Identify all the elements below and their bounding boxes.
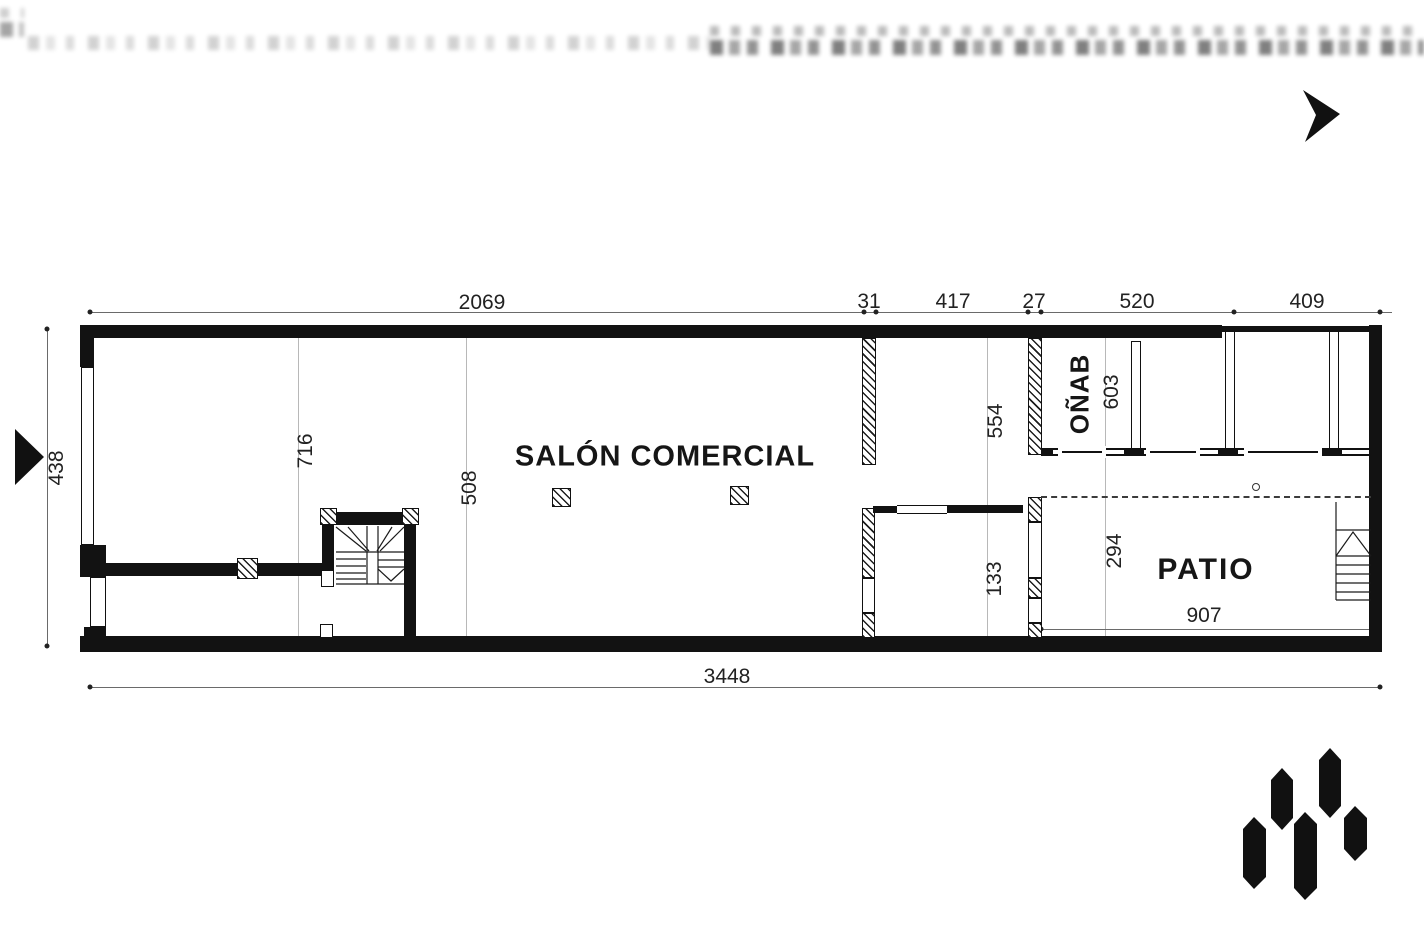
stalls-foot-0 — [1041, 448, 1053, 456]
stall-partition-3 — [1329, 331, 1339, 449]
vestibule-left-window — [862, 578, 875, 613]
window-left-lower — [90, 577, 106, 627]
patio-dashed-line — [1041, 496, 1371, 498]
dim-306: 603 — [1100, 374, 1124, 409]
wall-left-lower — [84, 627, 106, 641]
dim-617: 716 — [294, 433, 318, 468]
room-label-salon: SALÓN COMERCIAL — [515, 441, 815, 474]
patio-marker-circle — [1252, 483, 1260, 491]
dim-3448: 3448 — [704, 665, 751, 689]
vestibule-top-window — [897, 505, 947, 514]
dim-409: 409 — [1289, 290, 1324, 314]
dim-455: 554 — [984, 403, 1008, 438]
wall-hatch-27 — [1028, 338, 1042, 455]
stairwell-right-wall — [404, 524, 416, 638]
stairwell-corner-right — [402, 508, 419, 525]
dim-2069: 2069 — [459, 291, 506, 315]
dim-331: 133 — [983, 561, 1007, 596]
dim-520: 520 — [1119, 290, 1154, 314]
watermark-band-left — [28, 26, 710, 60]
wall-bottom — [80, 636, 1382, 652]
floor-plan-canvas: 2069 31 417 27 520 409 3448 907 438 716 … — [0, 0, 1424, 950]
stairwell-left-wall — [322, 524, 334, 570]
column-salon-a — [552, 488, 571, 507]
room-label-bano: OÑAB — [1065, 354, 1096, 435]
vestibule-top-a — [873, 506, 897, 513]
dim-line-left — [47, 329, 48, 646]
dim-834: 438 — [45, 450, 69, 485]
entry-arrow-icon — [15, 429, 44, 485]
stairwell-corner-left — [320, 508, 337, 525]
wall-top — [80, 325, 1222, 338]
stairwell-stub — [320, 624, 333, 638]
window-left-upper — [81, 367, 94, 545]
stall-partition-1 — [1131, 341, 1141, 449]
stalls-foot-2 — [1218, 448, 1238, 456]
dim-907: 907 — [1186, 604, 1221, 628]
dim-417: 417 — [935, 290, 970, 314]
stalls-foot-1 — [1124, 448, 1144, 456]
watermark-band-right — [710, 24, 1424, 62]
stairwell-door — [321, 570, 334, 587]
stalls-foot-3 — [1322, 448, 1342, 456]
wall-interior-low — [94, 563, 330, 576]
room-label-patio: PATIO — [1157, 553, 1254, 587]
dim-27: 27 — [1022, 290, 1045, 314]
wall-top-thin — [1222, 326, 1382, 332]
vestibule-right-a — [1028, 497, 1042, 522]
dim-31: 31 — [857, 290, 880, 314]
vestibule-top-b — [947, 505, 1023, 513]
vestibule-right-c — [1028, 623, 1042, 638]
brand-logo — [1243, 748, 1367, 900]
vestibule-right-b — [1028, 578, 1042, 598]
dim-492: 294 — [1103, 533, 1127, 568]
wall-hatch-31 — [862, 338, 876, 465]
column-low-wall — [237, 558, 258, 579]
stair-patio — [1336, 502, 1371, 600]
vestibule-right-window-a — [1028, 522, 1042, 578]
stair-left — [336, 526, 404, 584]
wall-right — [1369, 325, 1382, 652]
vestibule-right-window-b — [1028, 598, 1042, 623]
watermark-blob — [0, 6, 24, 60]
vestibule-left-b — [862, 613, 875, 638]
dim-line-top — [90, 312, 1392, 313]
column-salon-b — [730, 486, 749, 505]
stall-partition-2 — [1225, 331, 1235, 449]
stairwell-top-wall — [333, 512, 405, 525]
dim-805: 508 — [458, 470, 482, 505]
wall-left-upper — [80, 325, 94, 367]
north-arrow-icon — [1303, 90, 1340, 142]
grid-line-617 — [298, 338, 299, 638]
vestibule-left-a — [862, 508, 875, 578]
dim-line-patio — [1041, 629, 1377, 630]
